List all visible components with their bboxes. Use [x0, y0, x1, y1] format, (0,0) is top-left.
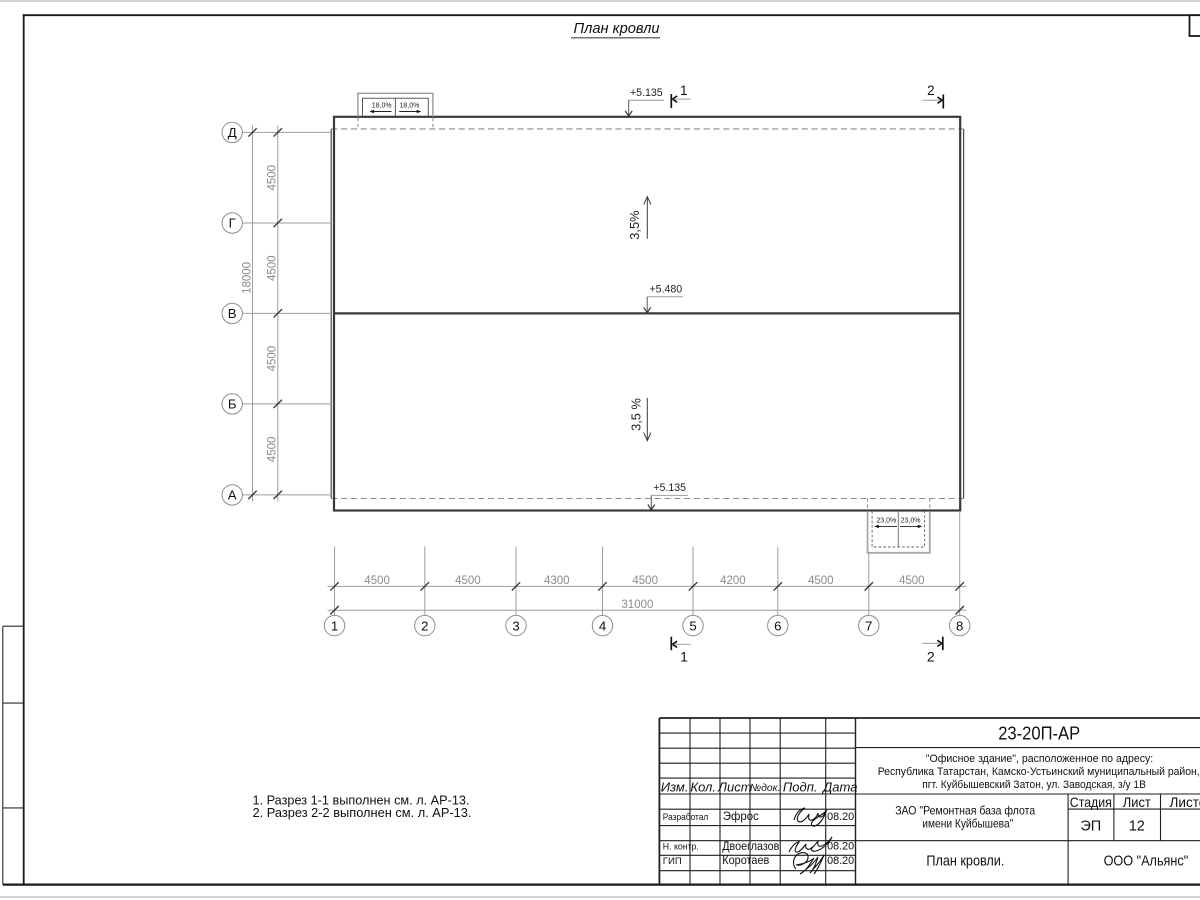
svg-text:4300: 4300: [544, 575, 570, 587]
svg-text:Д: Д: [228, 125, 237, 140]
svg-text:12: 12: [1129, 819, 1145, 835]
svg-text:Эфрос: Эфрос: [723, 809, 759, 823]
svg-text:+5.480: +5.480: [650, 284, 683, 296]
svg-text:Стадия: Стадия: [1070, 795, 1112, 810]
svg-text:08.20: 08.20: [827, 855, 854, 867]
svg-text:Подп.: Подп.: [783, 779, 818, 794]
svg-text:имени Куйбышева": имени Куйбышева": [922, 817, 1013, 830]
svg-text:Г: Г: [229, 216, 236, 231]
svg-text:ООО "Альянс": ООО "Альянс": [1104, 854, 1189, 870]
svg-text:2. Разрез 2-2 выполнен см. л.: 2. Разрез 2-2 выполнен см. л. АР-13.: [253, 806, 472, 820]
svg-text:23-20П-АР: 23-20П-АР: [998, 724, 1080, 744]
svg-text:Б: Б: [228, 397, 237, 412]
svg-text:4500: 4500: [899, 575, 925, 587]
svg-text:6: 6: [774, 618, 781, 633]
svg-text:3,5 %: 3,5 %: [629, 398, 644, 431]
svg-text:ГИП: ГИП: [663, 856, 682, 867]
svg-text:1: 1: [331, 618, 338, 633]
svg-text:4500: 4500: [455, 575, 481, 587]
svg-text:4500: 4500: [267, 165, 279, 191]
svg-text:1: 1: [680, 648, 688, 664]
svg-text:4200: 4200: [720, 575, 746, 587]
svg-text:Лист: Лист: [1123, 795, 1152, 810]
svg-text:ЗАО "Ремонтная база флота: ЗАО "Ремонтная база флота: [895, 804, 1035, 817]
svg-text:План кровли.: План кровли.: [926, 854, 1004, 870]
svg-text:4500: 4500: [632, 575, 658, 587]
svg-text:3: 3: [512, 618, 519, 633]
svg-text:23,0%: 23,0%: [901, 518, 921, 525]
svg-text:Дата: Дата: [821, 779, 857, 794]
svg-text:3,5%: 3,5%: [627, 211, 642, 240]
svg-text:31000: 31000: [621, 599, 653, 611]
svg-text:18,0%: 18,0%: [399, 103, 419, 110]
svg-text:08.20: 08.20: [827, 811, 854, 823]
svg-text:В: В: [228, 306, 237, 321]
svg-text:№док.: №док.: [750, 783, 781, 794]
svg-text:23,0%: 23,0%: [876, 518, 896, 525]
svg-text:7: 7: [865, 618, 872, 633]
svg-text:18,0%: 18,0%: [372, 103, 392, 110]
svg-text:Изм.: Изм.: [661, 779, 689, 794]
svg-text:Кол.: Кол.: [690, 779, 716, 794]
svg-text:1: 1: [680, 83, 688, 98]
svg-text:8: 8: [956, 618, 963, 633]
svg-text:2: 2: [927, 648, 935, 664]
svg-text:Разработал: Разработал: [663, 812, 709, 823]
svg-text:Двоеглазов: Двоеглазов: [722, 839, 779, 853]
svg-text:4: 4: [599, 618, 606, 633]
svg-text:2: 2: [421, 618, 428, 633]
svg-text:Республика Татарстан, Камско-У: Республика Татарстан, Камско-Устьинский …: [878, 766, 1200, 778]
svg-text:ЭП: ЭП: [1080, 819, 1101, 835]
svg-text:4500: 4500: [267, 437, 279, 463]
svg-text:2: 2: [927, 83, 935, 98]
svg-text:4500: 4500: [267, 255, 279, 281]
svg-text:4500: 4500: [808, 575, 834, 587]
svg-text:Н. контр.: Н. контр.: [663, 841, 699, 852]
svg-text:Листов: Листов: [1170, 795, 1200, 810]
svg-text:4500: 4500: [267, 346, 279, 372]
svg-text:пгт. Куйбышевский Затон, ул. З: пгт. Куйбышевский Затон, ул. Заводская, …: [922, 779, 1146, 791]
svg-text:4500: 4500: [364, 575, 390, 587]
svg-text:5: 5: [689, 618, 696, 633]
svg-text:Лист: Лист: [717, 779, 752, 794]
svg-text:"Офисное здание", расположенно: "Офисное здание", расположенное по адрес…: [926, 753, 1153, 765]
svg-text:План кровли: План кровли: [574, 20, 661, 37]
svg-text:08.20: 08.20: [827, 840, 854, 852]
svg-text:+5.135: +5.135: [630, 87, 663, 99]
svg-text:А: А: [228, 488, 237, 503]
svg-text:Коротаев: Коротаев: [722, 853, 769, 867]
svg-text:+5.135: +5.135: [653, 482, 686, 494]
svg-text:18000: 18000: [241, 262, 253, 294]
